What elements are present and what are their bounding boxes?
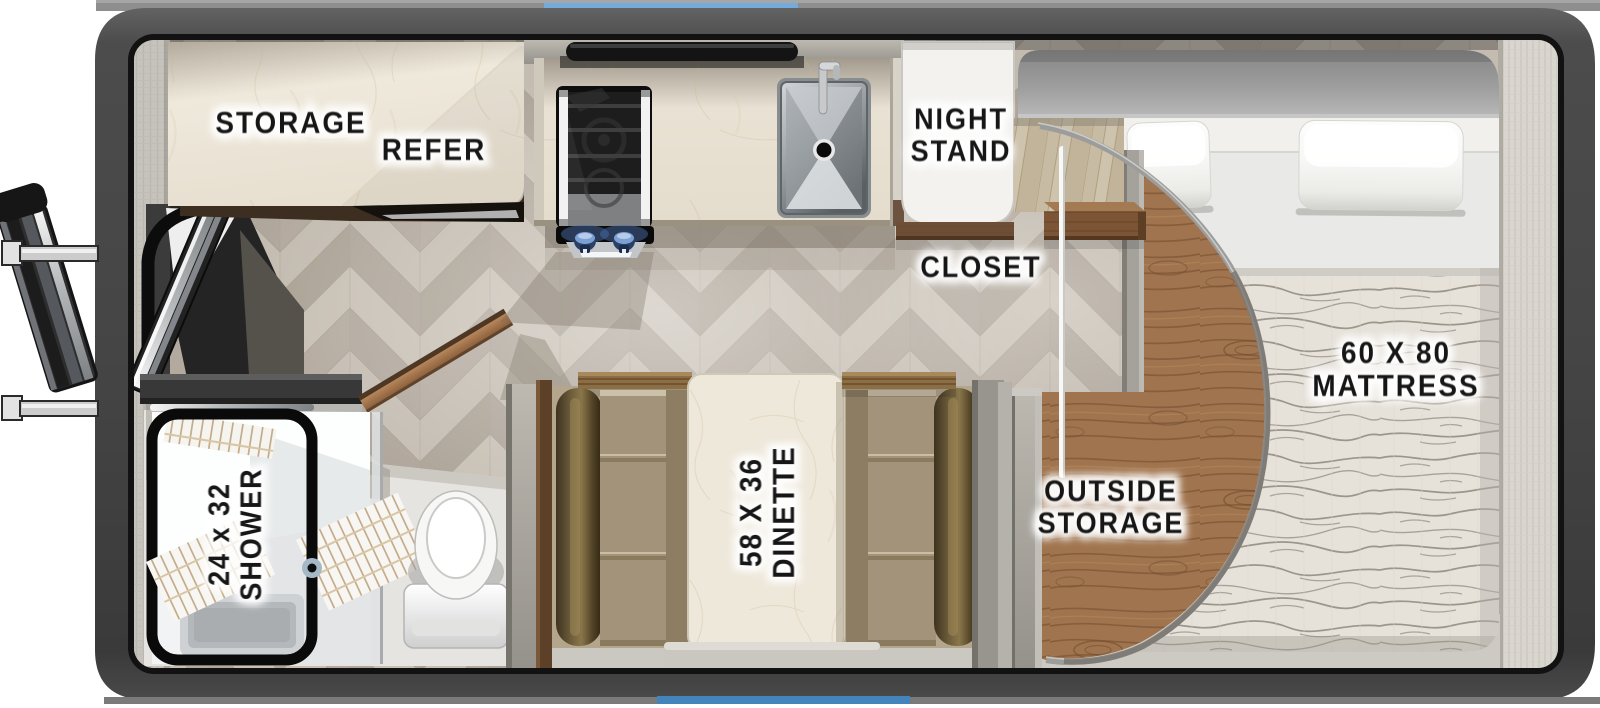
svg-text:DINETTE: DINETTE bbox=[767, 445, 802, 578]
svg-text:58 X 36: 58 X 36 bbox=[734, 457, 769, 567]
svg-text:24 x 32: 24 x 32 bbox=[203, 482, 237, 586]
svg-text:OUTSIDE: OUTSIDE bbox=[1044, 475, 1178, 509]
svg-text:STAND: STAND bbox=[911, 135, 1012, 169]
svg-text:60 X 80: 60 X 80 bbox=[1341, 336, 1451, 371]
svg-text:STORAGE: STORAGE bbox=[215, 106, 366, 141]
svg-text:STORAGE: STORAGE bbox=[1038, 507, 1185, 541]
svg-text:CLOSET: CLOSET bbox=[920, 251, 1041, 285]
svg-text:NIGHT: NIGHT bbox=[914, 103, 1008, 137]
svg-text:SHOWER: SHOWER bbox=[235, 467, 269, 600]
svg-text:REFER: REFER bbox=[382, 133, 486, 168]
svg-text:MATTRESS: MATTRESS bbox=[1312, 369, 1479, 404]
